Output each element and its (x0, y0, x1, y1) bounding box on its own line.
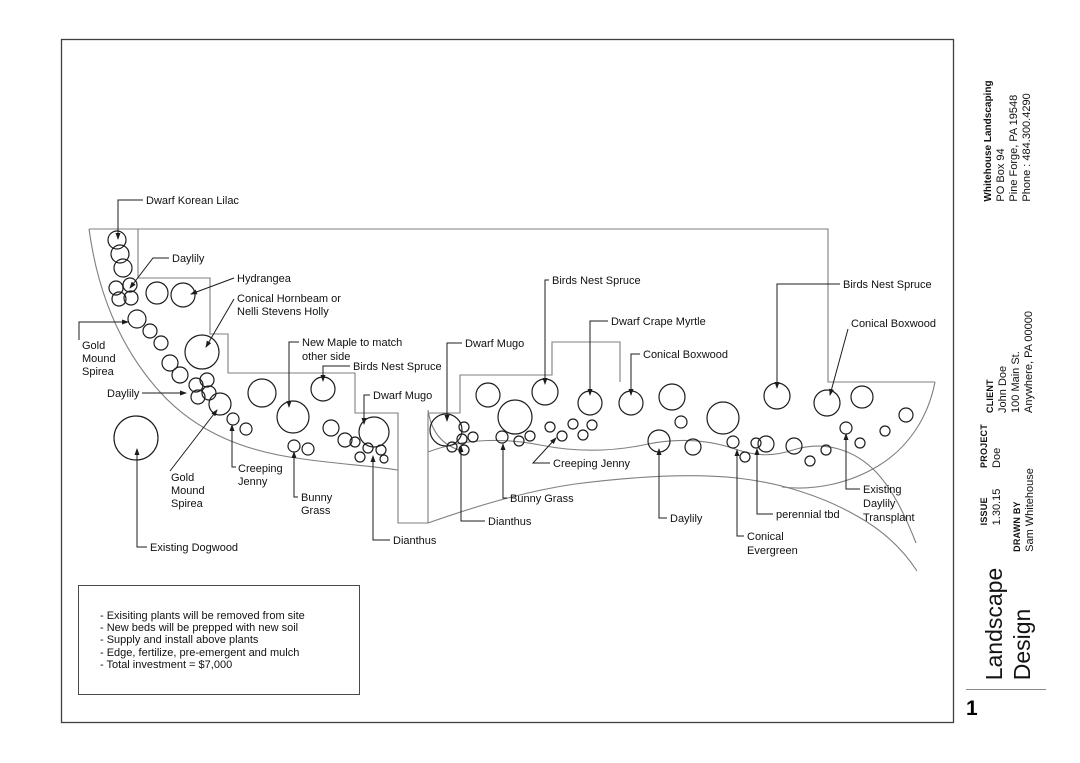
note-line: - Exisiting plants will be removed from … (100, 610, 305, 622)
plant-circle (248, 379, 276, 407)
sheet-title-line: Landscape (980, 568, 1008, 681)
issue-date: 1.30.15 (991, 489, 1004, 526)
issue-block: ISSUE 1.30.15 (978, 489, 1004, 526)
drawn-by-name: Sam Whitehouse (1024, 468, 1037, 552)
plant-label: New Maple to match (302, 337, 402, 349)
note-line: - Total investment = $7,000 (100, 659, 305, 671)
plant-label: Bunny Grass (510, 493, 574, 505)
plant-circle (363, 443, 373, 453)
plant-label: Creeping Jenny (553, 458, 631, 470)
plant-label: Mound (171, 485, 205, 497)
plant-circle (468, 432, 478, 442)
plant-circle (288, 440, 300, 452)
plant-circle (171, 283, 195, 307)
plant-circle (355, 452, 365, 462)
plant-label: Grass (301, 505, 331, 517)
plant-label: Daylily (172, 253, 205, 265)
drawn-by-block: DRAWN BY Sam Whitehouse (1011, 468, 1037, 552)
plant-circle (459, 422, 469, 432)
plant-circle (123, 278, 137, 292)
plant-label: Spirea (171, 498, 204, 510)
page-number-rule (966, 689, 1046, 690)
client-address-line: Anywhere, PA 00000 (1023, 311, 1036, 413)
plant-circle (659, 384, 685, 410)
leader-line (846, 434, 860, 489)
plant-circle (111, 245, 129, 263)
leader-line (545, 280, 549, 384)
plan-content: Dwarf Korean LilacDaylilyHydrangeaConica… (79, 195, 936, 571)
plant-circle (114, 259, 132, 277)
plant-label: Daylily (670, 513, 703, 525)
plant-circle (814, 390, 840, 416)
plant-label: Evergreen (747, 545, 798, 557)
plant-label: other side (302, 351, 350, 363)
plant-circle (840, 422, 852, 434)
title-block: WHITEHOUSE LANDSCAPING Whitehouse Landsc… (954, 0, 1080, 763)
company-address-line: PO Box 94 (995, 80, 1008, 201)
plant-circle (851, 386, 873, 408)
plant-circle (587, 420, 597, 430)
plant-circle (786, 438, 802, 454)
leader-line (461, 446, 485, 521)
leader-line (777, 284, 840, 388)
plant-circle (323, 420, 339, 436)
plant-label: Creeping (238, 463, 283, 475)
leader-line (631, 354, 640, 395)
plant-circle (675, 416, 687, 428)
plant-label: Conical Hornbeam or (237, 293, 341, 305)
leader-line (170, 410, 217, 471)
plant-label: Dianthus (488, 516, 532, 528)
note-line: - Supply and install above plants (100, 634, 305, 646)
plant-label: Daylily (107, 388, 140, 400)
project-block: PROJECT Doe (978, 424, 1004, 468)
plant-label: Nelli Stevens Holly (237, 306, 329, 318)
sheet-title-line: Design (1008, 568, 1036, 681)
leader-line (79, 322, 128, 340)
plant-label: Birds Nest Spruce (552, 275, 641, 287)
client-name: John Doe (997, 311, 1010, 413)
client-label: CLIENT (984, 311, 997, 413)
plant-circle (114, 416, 158, 460)
plant-circle (108, 231, 126, 249)
plant-circle (880, 426, 890, 436)
plant-label: Conical (747, 531, 784, 543)
plant-label: Dwarf Mugo (465, 338, 524, 350)
drawn-by-label: DRAWN BY (1011, 468, 1024, 552)
plant-circle (498, 400, 532, 434)
leader-line (191, 278, 234, 294)
plant-circle (476, 383, 500, 407)
plant-label: Dwarf Mugo (373, 390, 432, 402)
client-address-line: 100 Main St. (1010, 311, 1023, 413)
note-line: - New beds will be prepped with new soil (100, 622, 305, 634)
plant-label: Gold (82, 340, 105, 352)
company-address-block: Whitehouse Landscaping PO Box 94 Pine Fo… (982, 80, 1034, 201)
plant-label: Dwarf Korean Lilac (146, 195, 239, 207)
plant-label: perennial tbd (776, 509, 840, 521)
leader-line (503, 444, 507, 498)
bed-outline (138, 229, 620, 523)
plant-circle (805, 456, 815, 466)
plant-label: Gold (171, 472, 194, 484)
plant-label: Dwarf Crape Myrtle (611, 316, 706, 328)
plant-label: Birds Nest Spruce (843, 279, 932, 291)
leader-line (137, 449, 147, 547)
leader-line (232, 425, 236, 467)
plant-circle (154, 336, 168, 350)
plant-circle (277, 401, 309, 433)
leader-line (289, 342, 299, 407)
project-value: Doe (991, 424, 1004, 468)
plant-circle (302, 443, 314, 455)
project-label: PROJECT (978, 424, 991, 468)
plant-circle (380, 455, 388, 463)
plant-circle (143, 324, 157, 338)
plant-label: Jenny (238, 476, 268, 488)
notes-box: - Exisiting plants will be removed from … (78, 585, 360, 695)
drawing-sheet: { "colors": { "outline": "#7f7f7f", "ink… (0, 0, 1080, 763)
leader-line (118, 200, 143, 239)
bed-outline (782, 382, 935, 488)
note-line: - Edge, fertilize, pre-emergent and mulc… (100, 647, 305, 659)
plant-label: Conical Boxwood (851, 318, 936, 330)
notes-text: - Exisiting plants will be removed from … (100, 610, 305, 671)
plant-circle (146, 282, 168, 304)
plant-circle (128, 310, 146, 328)
bed-outline (89, 229, 935, 382)
plant-circle (240, 423, 252, 435)
plant-circle (209, 393, 231, 415)
leader-line (590, 321, 608, 395)
plant-label: Existing (863, 484, 902, 496)
page-number: 1 (966, 697, 978, 721)
plant-circle (578, 430, 588, 440)
plant-label: Transplant (863, 512, 915, 524)
client-block: CLIENT John Doe 100 Main St. Anywhere, P… (984, 311, 1036, 413)
plant-circle (496, 431, 508, 443)
plant-circle (172, 367, 188, 383)
plant-label: Spirea (82, 366, 115, 378)
plant-circle (568, 419, 578, 429)
plant-circle (899, 408, 913, 422)
plant-circle (557, 431, 567, 441)
plant-label: Bunny (301, 492, 333, 504)
leader-line (737, 450, 744, 536)
plant-circle (727, 436, 739, 448)
plant-label: Mound (82, 353, 116, 365)
plant-label: Daylily (863, 498, 896, 510)
issue-label: ISSUE (978, 489, 991, 526)
plant-circle (200, 373, 214, 387)
sheet-title: Landscape Design (980, 568, 1036, 681)
plant-label: Existing Dogwood (150, 542, 238, 554)
plant-circle (525, 431, 535, 441)
plant-circle (740, 452, 750, 462)
plant-label: Dianthus (393, 535, 437, 547)
company-phone: Phone : 484.300.4290 (1021, 80, 1034, 201)
plant-circle (227, 413, 239, 425)
plant-circle (685, 439, 701, 455)
plant-label: Birds Nest Spruce (353, 361, 442, 373)
plant-circle (545, 422, 555, 432)
plant-circle (185, 335, 219, 369)
plant-label: Hydrangea (237, 273, 292, 285)
leader-line (830, 329, 848, 395)
plant-label: Conical Boxwood (643, 349, 728, 361)
plant-circle (707, 402, 739, 434)
leader-line (659, 449, 667, 518)
company-address-line: Pine Forge, PA 19548 (1008, 80, 1021, 201)
company-name: Whitehouse Landscaping (982, 80, 995, 201)
plant-circle (855, 438, 865, 448)
